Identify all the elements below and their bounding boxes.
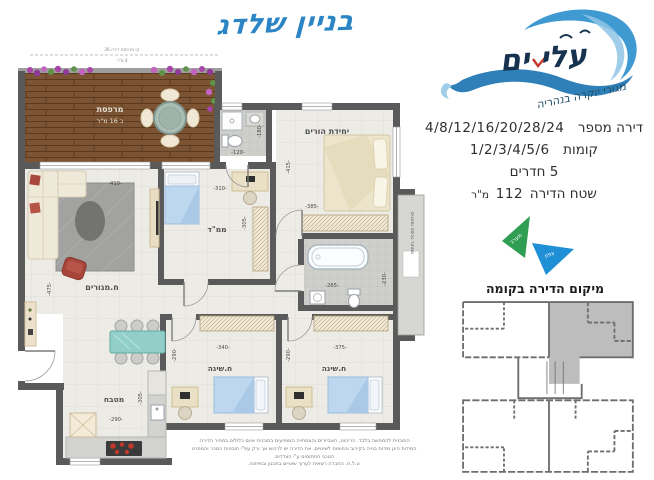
dim-bath-width: -265- (325, 283, 339, 289)
bedroom2-bed (328, 377, 382, 413)
bedroom2-label: ח.שינה (322, 364, 346, 373)
dim-bedroom2-height: -290- (286, 348, 292, 362)
brand-name: עלי ים (499, 38, 589, 79)
dim-living-height: -475- (47, 282, 53, 296)
disclaimer-line2: המידות הינן מידות בנייה בקירוב וכפופות ל… (188, 446, 420, 462)
dim-bedroom1-width: -340- (216, 345, 230, 351)
apartment-details: דירה מספר 4/8/12/16/20/28/24 קומות 1/2/3… (418, 117, 650, 206)
area-value: 112 (496, 186, 523, 202)
dim-mamad-width: -310- (213, 186, 227, 192)
rug-medallion (75, 201, 105, 241)
apartment-number-row: דירה מספר 4/8/12/16/20/28/24 (418, 117, 650, 139)
sink-main (310, 291, 325, 304)
keyplan-title: מיקום הדירה בקומה (445, 281, 645, 296)
kitchen-base-cabinet (70, 413, 96, 437)
keyplan (452, 298, 648, 478)
dim-kitchen-width: -290- (109, 417, 123, 423)
master-bed (324, 135, 390, 211)
flyer-page: בניין שלדג עלי ים מגורי יוקרה בנהריה דיר… (0, 0, 654, 480)
bedroom1-bed (214, 377, 268, 413)
mamad-label: ממ"ד (207, 225, 226, 234)
dim-living-width: -410- (108, 181, 122, 187)
toilet-top (228, 136, 242, 147)
master-label: יחידת הורים (305, 127, 349, 136)
stove (106, 441, 142, 456)
kitchen-label: מטבח (104, 395, 124, 404)
balcony-line-note: קו מרפסת דירה 26 (104, 47, 139, 52)
dining-table (110, 320, 165, 364)
dim-bedroom1-height: -290- (172, 348, 178, 362)
apartment-number-label: דירה מספר (578, 120, 643, 136)
keyplan-highlight (549, 302, 633, 384)
disclaimer: התוכנית להמחשה בלבד. הריהוט, האביזרים וה… (188, 438, 420, 469)
dim-bath-top-height: -180- (257, 124, 263, 138)
dim-mamad-height: -305- (242, 216, 248, 230)
area-row: שטח הדירה 112 מ"ר (418, 183, 650, 206)
bedroom2-wardrobe (314, 316, 388, 331)
bedroom1-wardrobe (200, 316, 274, 331)
dim-kitchen-height: -305- (138, 391, 144, 405)
floors-row: קומות 1/2/3/4/5/6 (418, 139, 650, 161)
brand-logo: עלי ים מגורי יוקרה בנהריה (432, 2, 648, 114)
compass: מערב צפון (500, 214, 584, 278)
compass-north-arrow (532, 243, 574, 275)
living-label: ח.מגורים (85, 283, 118, 292)
apartment-number-value: 4/8/12/16/20/28/24 (425, 120, 564, 136)
dim-bedroom2-width: -375- (333, 345, 347, 351)
area-unit: מ"ר (471, 189, 489, 201)
toilet-tank-top (222, 135, 228, 147)
mamad-bed (165, 172, 199, 224)
dim-bath-top-width: -120- (231, 150, 245, 156)
floor-plan: קו מרפסת דירה 26 4 מ"ר (10, 43, 430, 467)
entry-console (25, 302, 36, 346)
page-title: בניין שלדג (187, 5, 384, 43)
balcony-area-note: 4 מ"ר (116, 58, 127, 63)
dim-bath-height: -230- (382, 272, 388, 286)
laundry-label: מסתור כביסה ומזגנים (409, 212, 414, 254)
kitchen-sink (151, 405, 164, 420)
balcony-area-label: כ 16 מ"ר (97, 117, 124, 125)
toilet-main (349, 295, 360, 308)
disclaimer-line3: ט.ל.ח. החברה רשאית לערוך שינויים בתכנון … (188, 461, 420, 469)
rooms-row: 5 חדרים (418, 161, 650, 183)
floors-value: 1/2/3/4/5/6 (470, 142, 550, 158)
laundry-screen: מסתור כביסה ומזגנים (398, 195, 424, 335)
balcony: מרפסת כ 16 מ"ר (18, 66, 222, 162)
sink-top (250, 115, 260, 123)
floors-label: קומות (563, 142, 598, 158)
tv-console (150, 189, 159, 247)
balcony-label: מרפסת (97, 105, 124, 114)
mamad-wardrobe (253, 207, 268, 271)
dim-master-width: -385- (305, 204, 319, 210)
disclaimer-line1: התוכנית להמחשה בלבד. הריהוט, האביזרים וה… (188, 438, 420, 446)
dim-master-height: -415- (286, 160, 292, 174)
shower (222, 112, 242, 130)
bedroom1-label: ח.שינה (208, 364, 232, 373)
master-wardrobe (302, 215, 388, 231)
area-label: שטח הדירה (530, 186, 597, 202)
